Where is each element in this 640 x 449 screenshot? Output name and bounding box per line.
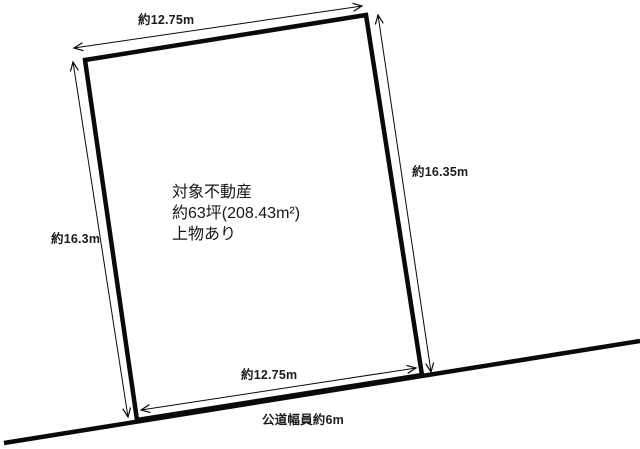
left-dimension-label: 約16.3m [51,228,100,247]
plot-diagram-canvas [0,0,640,449]
road-width-label: 公道幅員約6m [262,409,344,428]
property-description: 対象不動産 約63坪(208.43m²) 上物あり [172,182,300,245]
right-dimension-arrow [378,15,431,372]
property-description-line2: 約63坪(208.43m²) [172,203,300,224]
top-dimension-label: 約12.75m [138,9,194,28]
property-description-line3: 上物あり [172,224,300,245]
property-description-line1: 対象不動産 [172,182,300,203]
right-dimension-label: 約16.35m [412,161,468,180]
plot-diagram: 約12.75m 約16.3m 約16.35m 約12.75m 公道幅員約6m 対… [0,0,640,449]
top-dimension-arrow [74,6,362,48]
bottom-dimension-label: 約12.75m [241,364,297,383]
